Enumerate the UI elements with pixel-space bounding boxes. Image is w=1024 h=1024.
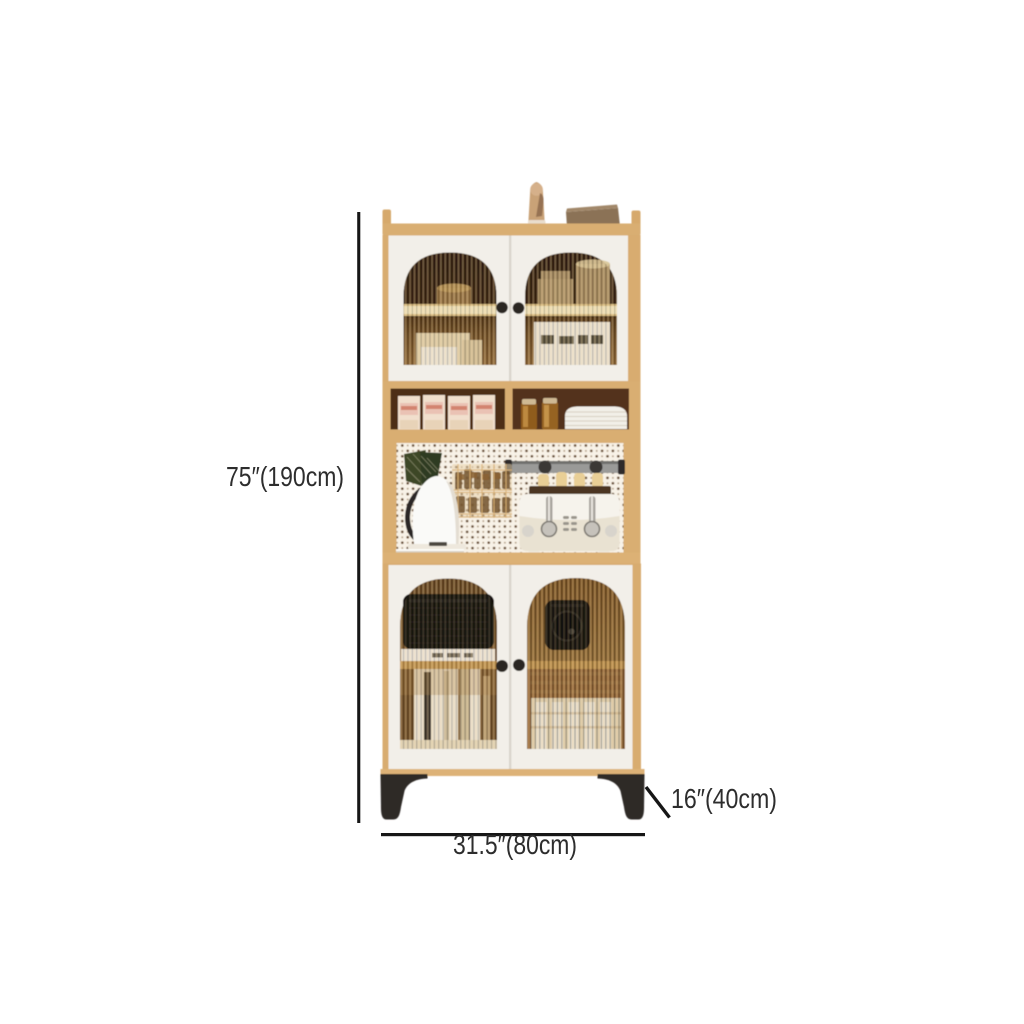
svg-text:75″(190cm): 75″(190cm) — [226, 461, 344, 492]
svg-text:16″(40cm): 16″(40cm) — [671, 783, 777, 814]
svg-text:31.5″(80cm): 31.5″(80cm) — [453, 829, 577, 860]
